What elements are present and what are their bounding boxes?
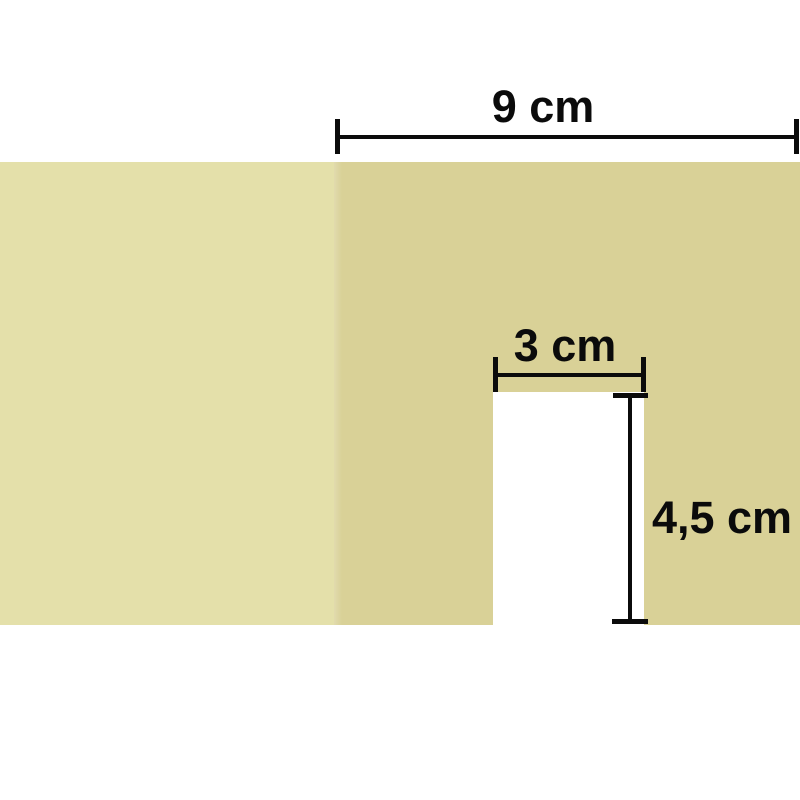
dim-9cm-label: 9 cm (443, 84, 643, 130)
dim-4-5cm-tick-bottom (612, 619, 648, 624)
panel-left-light (0, 162, 334, 625)
geometry-diagram: 9 cm 3 cm 4,5 cm (0, 0, 800, 800)
dim-4-5cm-label: 4,5 cm (622, 495, 800, 541)
dim-9cm-line (337, 135, 796, 139)
dim-3cm-line (495, 373, 644, 377)
dim-9cm-tick-left (335, 119, 340, 154)
dim-4-5cm-tick-top (613, 393, 648, 398)
dim-9cm-tick-right (794, 119, 799, 154)
dim-3cm-label: 3 cm (465, 324, 665, 368)
